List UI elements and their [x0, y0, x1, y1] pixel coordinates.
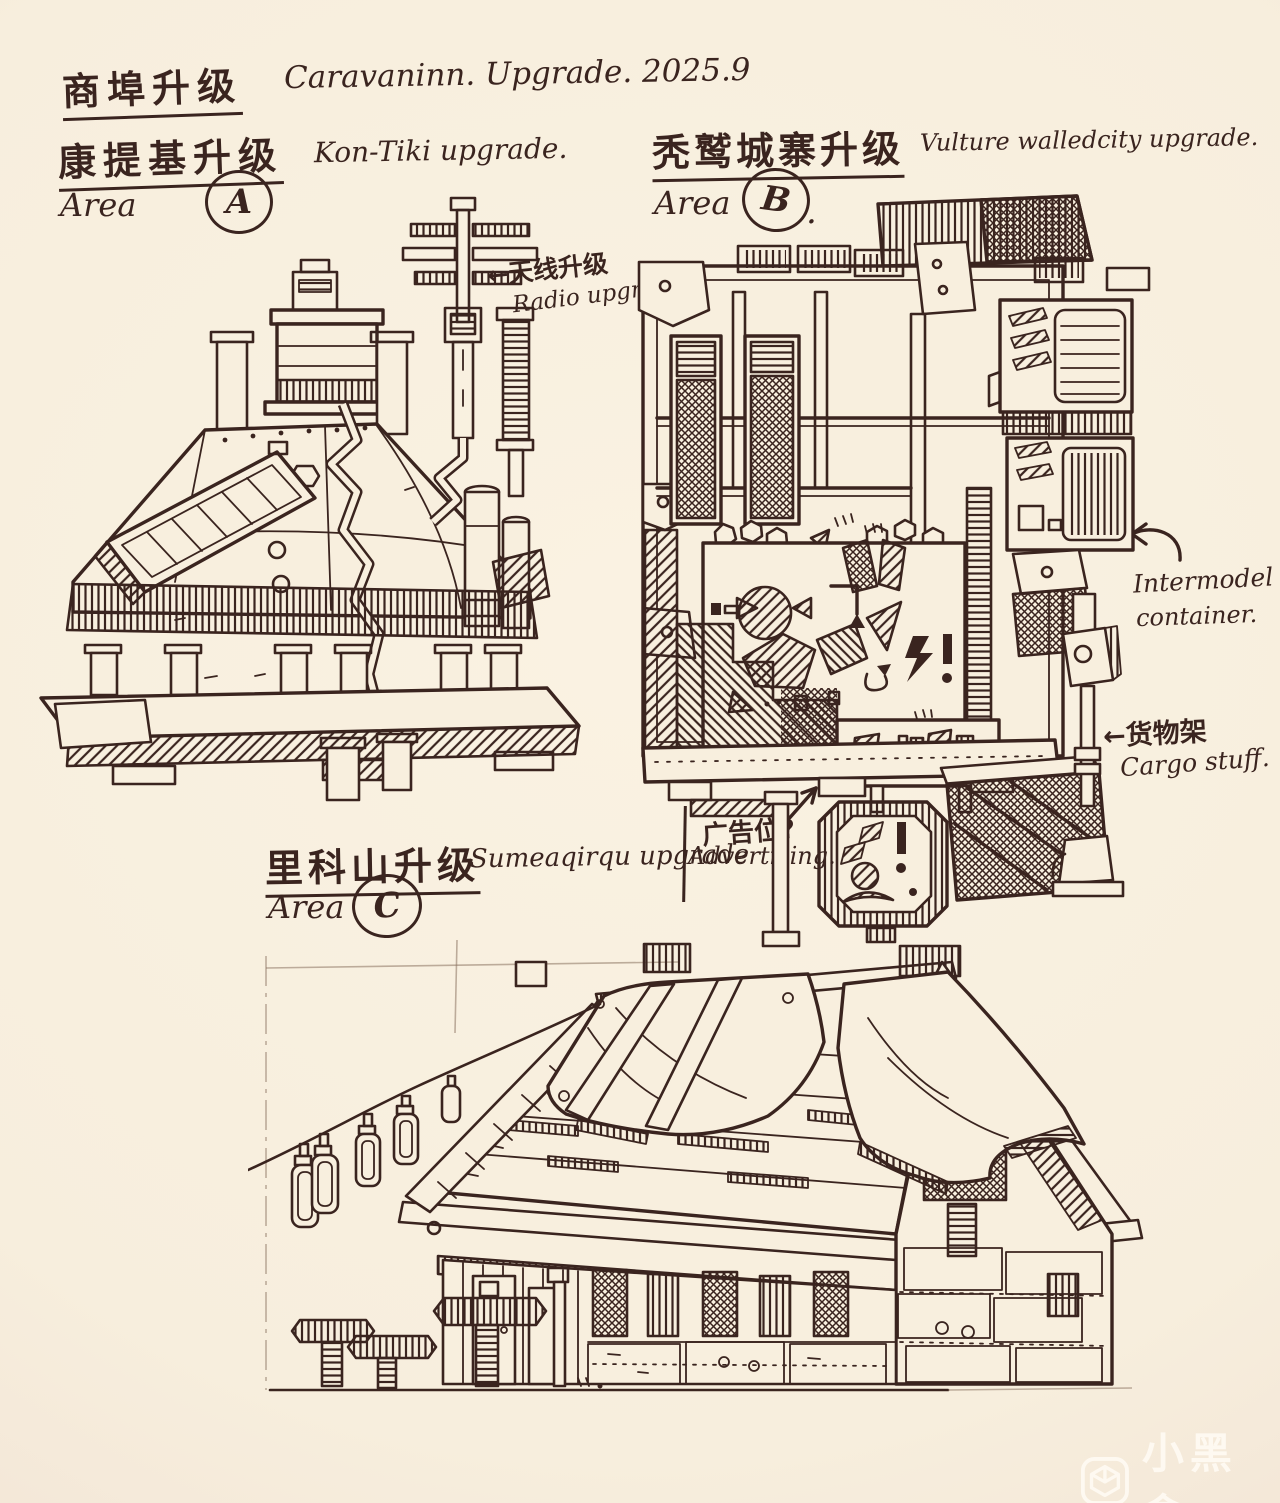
base-platform — [41, 584, 579, 800]
ribbed-pipe — [497, 308, 533, 496]
watermark-text: 小黑盒 — [1142, 1420, 1280, 1503]
area-a-sketch — [25, 190, 600, 810]
roof-container — [878, 196, 1092, 266]
area-b-title-en: Vulture walledcity upgrade. — [920, 123, 1259, 157]
area-c-sketch — [248, 938, 1148, 1433]
watermark: 小黑盒 — [1080, 1420, 1280, 1503]
area-c-letter: C — [371, 885, 402, 928]
octagon-sign — [819, 802, 947, 942]
area-a-title-en: Kon-Tiki upgrade. — [314, 132, 568, 169]
turret — [211, 260, 413, 434]
page-title-zh: 商埠升级 — [61, 55, 243, 121]
sketch-page: 商埠升级 Caravaninn. Upgrade. 2025.9 康提基升级 K… — [0, 0, 1280, 1503]
heybox-logo-icon — [1080, 1455, 1130, 1503]
area-b-sketch — [615, 188, 1190, 960]
area-c-word: Area — [268, 888, 344, 926]
page-title-en: Caravaninn. Upgrade. 2025.9 — [284, 52, 751, 96]
